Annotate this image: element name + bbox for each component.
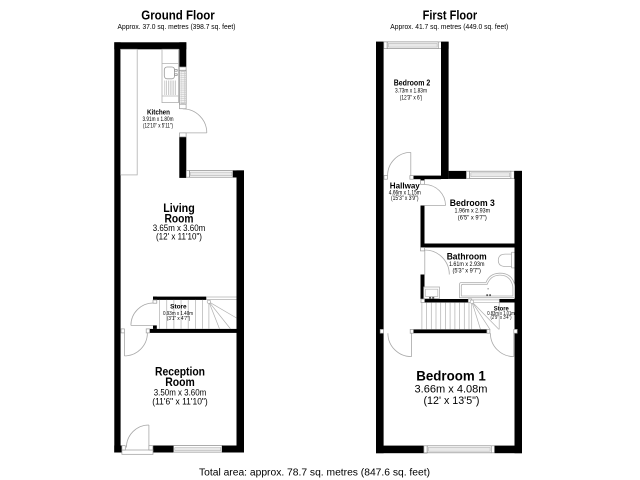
svg-text:(12' x 13'5"): (12' x 13'5") xyxy=(424,395,480,407)
svg-text:(3'1" x 4'7"): (3'1" x 4'7") xyxy=(167,316,191,322)
svg-text:Approx. 37.0 sq. metres (398.7: Approx. 37.0 sq. metres (398.7 sq. feet) xyxy=(118,22,236,31)
svg-text:(12'10" x 5'11"): (12'10" x 5'11") xyxy=(143,123,173,129)
svg-text:Ground Floor: Ground Floor xyxy=(141,7,215,22)
svg-text:3.73m x 1.83m: 3.73m x 1.83m xyxy=(395,89,427,95)
svg-text:3.91m x 1.80m: 3.91m x 1.80m xyxy=(143,117,174,123)
svg-text:Approx. 41.7 sq. metres (449.0: Approx. 41.7 sq. metres (449.0 sq. feet) xyxy=(390,22,508,31)
svg-text:Bedroom 1: Bedroom 1 xyxy=(416,368,486,384)
svg-text:(2'9" x 3'4"): (2'9" x 3'4") xyxy=(491,315,512,321)
svg-text:Store: Store xyxy=(170,304,187,311)
svg-text:(12'3" x 6'): (12'3" x 6') xyxy=(400,95,423,101)
svg-text:Bathroom: Bathroom xyxy=(447,252,487,262)
svg-text:(12' x 11'10"): (12' x 11'10") xyxy=(156,231,202,241)
svg-text:(15'3" x 3'9"): (15'3" x 3'9") xyxy=(391,196,419,202)
svg-text:Bedroom 2: Bedroom 2 xyxy=(394,78,431,87)
svg-text:(6'5" x 9'7"): (6'5" x 9'7") xyxy=(458,214,487,221)
svg-text:Hallway: Hallway xyxy=(390,182,420,191)
svg-text:(11'6" x 11'10"): (11'6" x 11'10") xyxy=(152,397,208,407)
svg-text:Total area: approx. 78.7 sq. m: Total area: approx. 78.7 sq. metres (847… xyxy=(199,467,430,478)
svg-text:First Floor: First Floor xyxy=(423,7,478,22)
svg-text:3.66m x 4.08m: 3.66m x 4.08m xyxy=(415,383,488,395)
svg-text:Kitchen: Kitchen xyxy=(147,108,170,117)
svg-text:(5'3" x 9'7"): (5'3" x 9'7") xyxy=(452,268,481,275)
svg-text:Bedroom 3: Bedroom 3 xyxy=(450,198,495,208)
